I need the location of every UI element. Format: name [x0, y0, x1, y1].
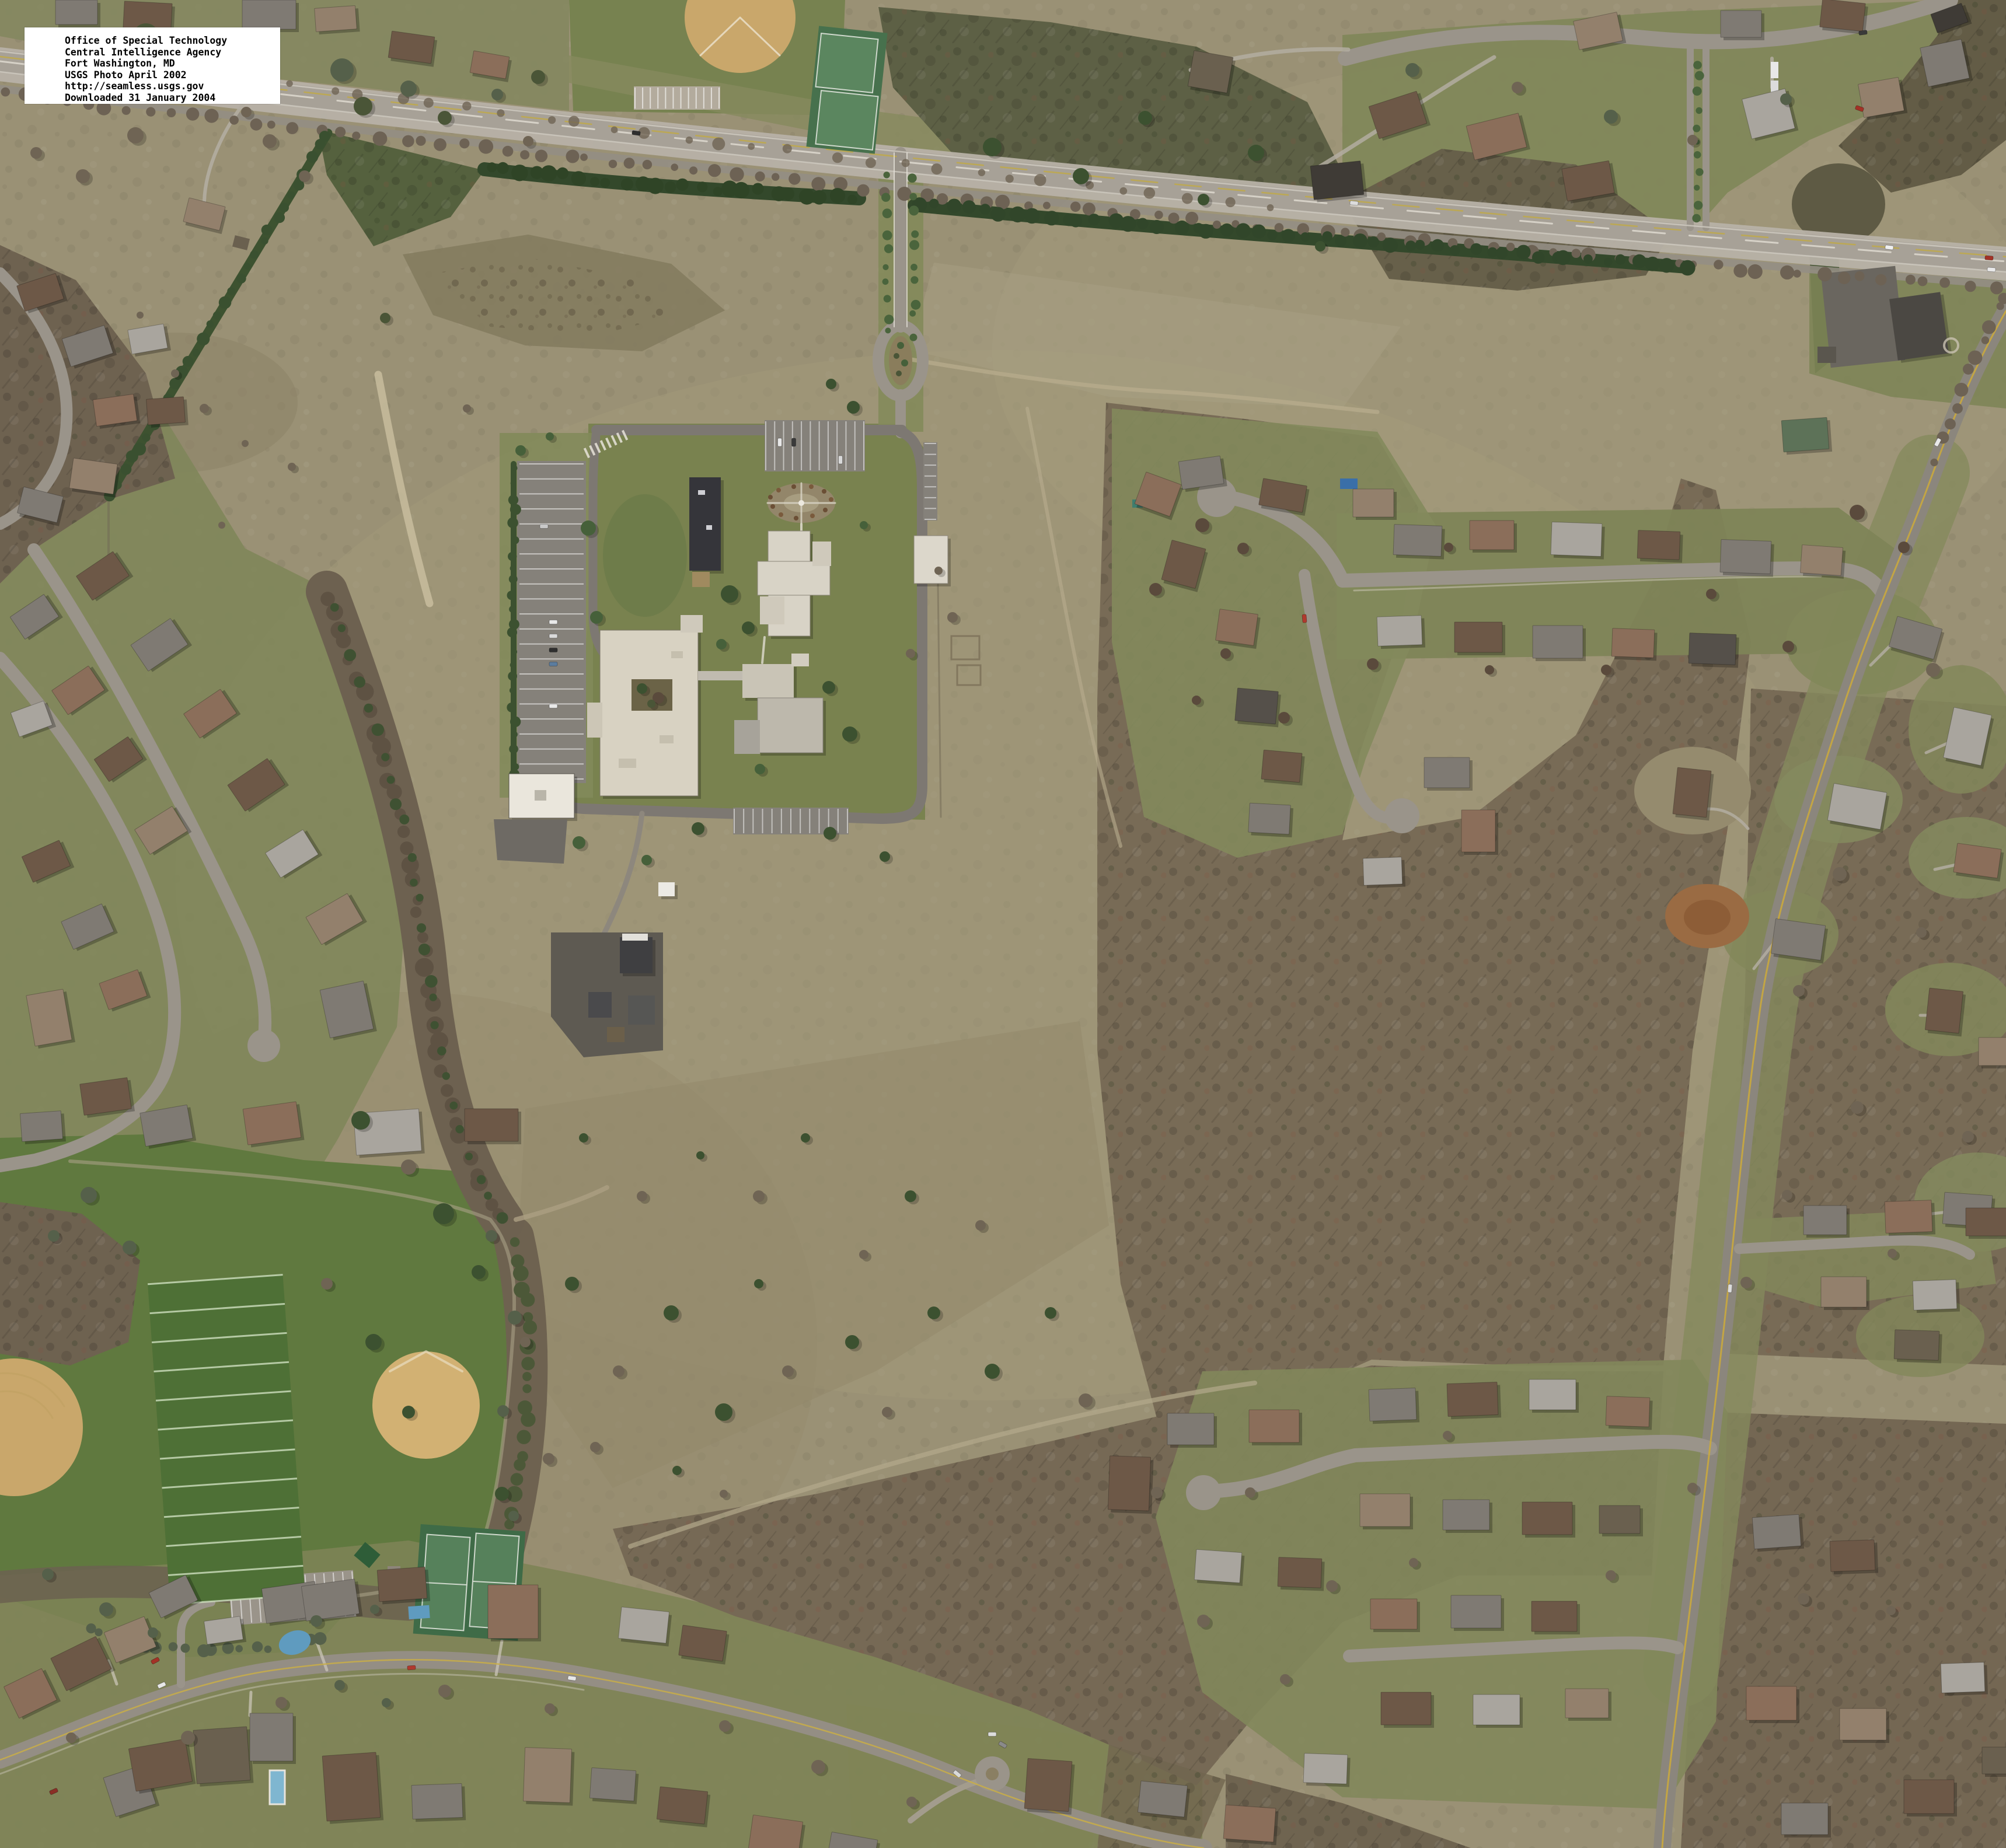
house: [377, 1567, 427, 1602]
tree-row: [643, 160, 652, 169]
house: [93, 394, 137, 426]
tree: [779, 512, 783, 517]
house: [55, 0, 97, 25]
drive-trees: [882, 230, 892, 240]
boundary-trees: [455, 1125, 463, 1133]
main-building-wing: [681, 615, 703, 633]
house: [1473, 1695, 1520, 1725]
house: [1108, 1456, 1150, 1511]
pool: [270, 1770, 285, 1804]
drive-trees: [882, 264, 888, 270]
tree-row: [1006, 174, 1014, 183]
tree: [543, 1453, 554, 1465]
tree-row: [250, 118, 263, 131]
hedge-trees: [126, 450, 138, 463]
boundary-trees: [387, 776, 395, 784]
tree: [672, 1466, 682, 1475]
house: [1310, 161, 1364, 200]
hedge-trees: [306, 151, 318, 163]
credit-line-2: Central Intelligence Agency: [65, 47, 280, 58]
tree: [148, 1627, 158, 1638]
house: [1830, 1540, 1875, 1572]
boundary-trees: [425, 975, 438, 988]
hedge-trees: [1583, 254, 1593, 264]
tree: [573, 836, 585, 849]
tennis-court: [815, 33, 878, 93]
tree: [1798, 1593, 1809, 1605]
asphalt-apron: [494, 819, 567, 864]
tree-row: [1838, 271, 1851, 284]
tree: [1138, 111, 1152, 125]
tree-row: [730, 167, 744, 181]
house: [1721, 11, 1761, 37]
hedge-trees: [1024, 208, 1040, 224]
hedge-trees: [733, 182, 749, 198]
tree: [791, 484, 796, 489]
tree: [896, 371, 902, 376]
car: [549, 634, 557, 638]
boundary-trees: [381, 753, 389, 761]
tree-row: [86, 1623, 96, 1633]
boundary-trees: [400, 841, 413, 855]
car: [540, 525, 548, 529]
median-trees: [1693, 86, 1702, 96]
median-trees: [1694, 185, 1700, 191]
tree: [321, 1278, 333, 1290]
tree: [847, 401, 860, 414]
tree-row: [580, 153, 588, 161]
hedge-trees: [1252, 225, 1266, 239]
house: [1451, 1595, 1501, 1628]
tree-row: [1275, 223, 1284, 232]
tree: [1780, 93, 1792, 105]
car: [1350, 201, 1359, 205]
tree: [123, 1241, 137, 1255]
hedge-trees: [1335, 235, 1346, 247]
house: [315, 6, 357, 32]
house: [1894, 1330, 1939, 1361]
hedge-trees: [1322, 231, 1332, 242]
hedge-trees: [120, 464, 131, 475]
drive-trees: [884, 295, 891, 302]
house: [1363, 857, 1403, 885]
tree: [829, 497, 833, 502]
house: [1688, 633, 1736, 665]
hedge-trees: [1604, 258, 1612, 266]
tree: [934, 567, 943, 575]
hedge-trees: [752, 183, 764, 195]
credit-line-3: Fort Washington, MD: [65, 58, 280, 69]
house: [1637, 530, 1680, 560]
tree: [1886, 1606, 1896, 1615]
tree: [1512, 82, 1523, 93]
tree-row: [511, 1473, 524, 1486]
hedge-trees: [1368, 236, 1379, 247]
car: [568, 1676, 577, 1681]
tree: [824, 827, 836, 840]
car: [549, 620, 557, 624]
tree: [1149, 583, 1162, 596]
tree: [354, 97, 372, 116]
tree: [637, 1191, 647, 1201]
boundary-trees: [364, 704, 374, 713]
tree: [882, 1407, 892, 1417]
hedge-trees: [1175, 221, 1189, 235]
tree: [508, 1511, 519, 1521]
tree: [641, 855, 652, 865]
tree-row: [1955, 383, 1969, 397]
tree: [822, 489, 826, 494]
baseball-infield-right: [372, 1351, 480, 1459]
house: [1443, 1500, 1489, 1530]
tree: [472, 1265, 486, 1279]
tree-row: [517, 1430, 531, 1444]
house: [411, 1784, 463, 1819]
tree-row: [902, 159, 910, 167]
tree-row: [522, 1372, 532, 1381]
house: [1803, 1206, 1847, 1235]
roof-vent: [698, 490, 705, 495]
parked-rv: [1771, 62, 1778, 78]
tree: [753, 1190, 765, 1202]
drive-trees: [884, 172, 890, 178]
tree-row: [514, 1459, 525, 1470]
house: [1353, 489, 1394, 517]
tree: [1278, 712, 1290, 724]
boundary-trees: [410, 907, 421, 918]
boundary-trees: [410, 879, 418, 887]
tree: [463, 404, 471, 413]
tree: [692, 822, 704, 835]
tree-row: [1182, 193, 1193, 204]
tree: [1833, 867, 1847, 881]
house: [1249, 1410, 1299, 1442]
tree-row: [748, 143, 755, 150]
tree-row: [416, 136, 425, 146]
tree-row: [1875, 274, 1886, 285]
house: [204, 1616, 243, 1644]
car: [1728, 1284, 1732, 1293]
house: [301, 1579, 359, 1621]
tree: [906, 1797, 917, 1807]
hedge-trees: [207, 320, 214, 328]
connector: [698, 671, 742, 680]
tree: [845, 1335, 859, 1349]
hedge-trees: [510, 687, 516, 694]
house: [1904, 1780, 1954, 1814]
tree-row: [548, 116, 556, 124]
hedge-trees: [280, 203, 289, 212]
house: [1393, 525, 1442, 557]
tree-row: [789, 173, 800, 185]
house: [1024, 1758, 1072, 1811]
hedge-trees: [962, 200, 976, 214]
tree-row: [521, 1412, 535, 1427]
hedge-trees: [929, 199, 939, 208]
boundary-trees: [372, 724, 384, 736]
tree: [486, 1230, 497, 1242]
house: [488, 1585, 538, 1639]
tree: [1687, 135, 1698, 145]
tree-row: [566, 150, 580, 163]
tree-row: [1945, 418, 1956, 429]
hedge-trees: [142, 434, 150, 442]
credit-line-5: http://seamless.usgs.gov: [65, 81, 280, 92]
house: [1370, 1599, 1417, 1629]
tree: [48, 1230, 60, 1242]
boundary-trees: [416, 894, 424, 902]
hedge-trees: [980, 204, 991, 215]
house: [1235, 688, 1279, 724]
house: [1531, 1601, 1577, 1632]
tree-row: [186, 107, 199, 120]
hedge-trees: [507, 518, 518, 529]
boundary-trees: [390, 798, 402, 810]
cross-building-wing: [760, 596, 784, 624]
maintenance-shed: [628, 995, 655, 1025]
house: [1303, 1753, 1348, 1784]
tree-row: [503, 146, 514, 157]
car: [1985, 256, 1993, 260]
tree: [1326, 1580, 1338, 1592]
tree: [523, 136, 533, 146]
tree: [1443, 1431, 1452, 1440]
tree: [768, 495, 773, 499]
boundary-trees: [437, 1046, 446, 1056]
tree-row: [1070, 202, 1081, 212]
house: [465, 1109, 518, 1141]
hedge-trees: [665, 181, 676, 193]
house: [1599, 1505, 1640, 1533]
tree-row: [978, 169, 985, 176]
tree: [1962, 1131, 1974, 1143]
car: [549, 704, 557, 708]
tree-row: [521, 1293, 535, 1307]
boundary-trees: [477, 1175, 486, 1185]
tree-row: [708, 164, 721, 177]
tree-row: [568, 116, 580, 127]
tree-row: [286, 81, 292, 87]
hedge-trees: [1532, 251, 1544, 264]
tree-row: [181, 1644, 190, 1653]
house: [1925, 988, 1963, 1033]
hedge-trees: [261, 237, 268, 244]
tree: [400, 81, 417, 97]
tree-row: [434, 138, 446, 151]
hedge-trees: [713, 187, 723, 196]
hedge-trees: [1236, 223, 1250, 237]
tree: [137, 312, 144, 319]
boundary-trees: [418, 944, 430, 955]
tree-row: [521, 1357, 535, 1370]
tree: [497, 1405, 509, 1417]
hedge-trees: [1632, 254, 1646, 268]
tree-row: [204, 109, 218, 123]
hedge-trees: [1645, 257, 1660, 271]
house: [250, 1713, 293, 1761]
median-trees: [1692, 214, 1701, 223]
tree-row: [772, 173, 779, 181]
house: [1278, 1557, 1322, 1588]
house: [1982, 1747, 2006, 1774]
drive-trees: [908, 173, 917, 183]
hedge-trees: [509, 575, 518, 584]
tree: [365, 1334, 382, 1350]
house: [20, 1111, 62, 1142]
tree: [1604, 110, 1618, 124]
tree: [1601, 665, 1611, 675]
tree: [696, 1151, 704, 1159]
house: [146, 397, 186, 425]
tree: [590, 611, 603, 624]
hedge-trees: [512, 465, 518, 471]
tree: [1409, 1558, 1418, 1567]
boundary-trees: [336, 633, 351, 648]
tree: [859, 1250, 868, 1259]
hedge-trees: [1659, 258, 1674, 273]
tree: [822, 681, 835, 694]
house: [1216, 609, 1258, 646]
tree-row: [1963, 364, 1974, 375]
tree-row: [712, 138, 725, 151]
tree: [531, 70, 545, 84]
tree: [715, 1403, 732, 1421]
maintenance-shed: [588, 992, 612, 1018]
house: [1781, 417, 1829, 452]
hedge-trees: [510, 717, 521, 727]
hedge-trees: [812, 190, 826, 205]
tree: [218, 522, 225, 529]
hedge-trees: [647, 178, 664, 194]
house: [657, 1787, 707, 1824]
house: [618, 1607, 669, 1643]
hedge-trees: [509, 745, 518, 754]
oval-lawn: [603, 494, 687, 617]
fountain: [798, 500, 804, 506]
tree: [1793, 985, 1805, 997]
tree: [894, 353, 899, 359]
tree: [1898, 542, 1910, 553]
tree-row: [535, 150, 547, 162]
tree-row: [1119, 187, 1127, 195]
tree: [1485, 665, 1494, 675]
tree: [76, 169, 90, 183]
house: [1611, 628, 1655, 658]
hedge-trees: [1415, 240, 1425, 250]
house: [1261, 750, 1302, 782]
main-building-annex: [587, 703, 602, 738]
house: [1551, 522, 1602, 557]
house: [1746, 1686, 1796, 1720]
annex: [692, 572, 710, 587]
tree: [1280, 1674, 1290, 1685]
tree: [334, 1680, 345, 1690]
tree: [811, 1760, 825, 1774]
house: [1454, 622, 1502, 652]
scene-svg: [0, 0, 2006, 1848]
cross-building-wing: [812, 542, 831, 566]
tree: [1405, 63, 1419, 77]
car: [792, 438, 796, 446]
hedge-trees: [1220, 223, 1234, 237]
tree: [581, 520, 596, 536]
tree-row: [1952, 403, 1963, 414]
hedge-trees: [1431, 239, 1444, 252]
house: [243, 1102, 301, 1145]
tree: [947, 612, 958, 623]
tree-row: [520, 150, 529, 159]
hedge-trees: [507, 703, 517, 712]
hedge-trees: [507, 591, 517, 600]
tree: [30, 147, 42, 159]
tree: [1045, 1307, 1056, 1319]
tree: [719, 1720, 731, 1732]
tree-row: [1748, 264, 1763, 279]
house: [1752, 1514, 1801, 1549]
tree: [382, 1698, 391, 1707]
east-building: [758, 698, 823, 753]
tree-row: [1226, 197, 1236, 207]
tree-row: [332, 88, 339, 95]
pool: [408, 1605, 430, 1619]
tree-row: [373, 131, 388, 146]
house: [1533, 626, 1583, 658]
tree: [664, 1305, 679, 1321]
house: [1966, 1208, 2006, 1236]
boundary-trees: [417, 923, 426, 932]
house: [1840, 1709, 1886, 1740]
median-trees: [1694, 201, 1703, 209]
tree: [1220, 648, 1231, 659]
tree-row: [335, 127, 346, 137]
field-shed: [658, 882, 675, 896]
tree-row: [1906, 275, 1916, 285]
roof-unit: [671, 651, 683, 658]
tree: [1782, 1190, 1792, 1200]
hedge-trees: [511, 649, 517, 655]
hedge-trees: [510, 662, 516, 668]
tree: [810, 513, 815, 518]
tree: [299, 170, 311, 182]
tree: [1079, 1393, 1093, 1407]
tree-row: [624, 158, 635, 169]
tree: [579, 1133, 588, 1143]
house: [1565, 1689, 1609, 1718]
ballpark-lot: [634, 86, 720, 110]
house: [1424, 757, 1470, 788]
boundary-trees: [442, 1072, 450, 1080]
hedge-trees: [193, 349, 200, 357]
dirt-patch-center: [1684, 900, 1731, 935]
hedge-trees: [1120, 216, 1136, 232]
tree: [380, 313, 390, 323]
tree-row: [1733, 264, 1747, 278]
driveway: [250, 1692, 251, 1716]
tree-row: [167, 108, 176, 117]
tree: [1237, 543, 1249, 554]
hedge-trees: [509, 606, 516, 613]
tree: [860, 521, 868, 529]
boundary-trees: [417, 932, 428, 943]
drive-trees: [910, 276, 918, 284]
house: [1885, 1200, 1932, 1234]
house: [1522, 1502, 1572, 1535]
hedge-trees: [507, 627, 517, 637]
football-field: [148, 1275, 305, 1605]
drive-trees: [882, 208, 892, 218]
house: [1673, 767, 1711, 818]
tree-row: [169, 1642, 178, 1651]
